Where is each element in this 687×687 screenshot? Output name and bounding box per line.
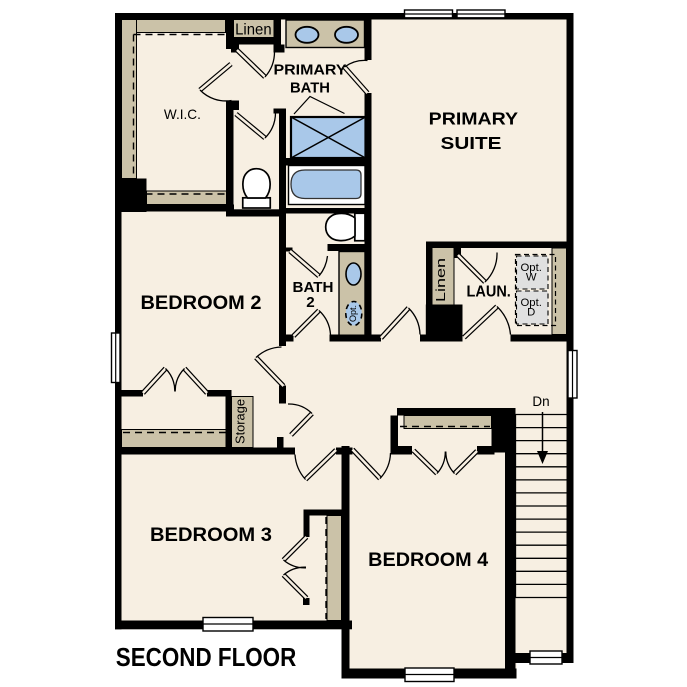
svg-text:BATH: BATH: [290, 80, 330, 97]
svg-text:Storage: Storage: [232, 399, 247, 444]
svg-text:SUITE: SUITE: [441, 133, 502, 153]
svg-text:W.I.C.: W.I.C.: [164, 106, 201, 122]
svg-text:Linen: Linen: [433, 258, 448, 302]
svg-text:D: D: [527, 306, 535, 318]
svg-text:Dn: Dn: [532, 394, 549, 409]
svg-text:SECOND FLOOR: SECOND FLOOR: [116, 642, 297, 672]
svg-text:BEDROOM 3: BEDROOM 3: [150, 524, 272, 546]
svg-text:BEDROOM 4: BEDROOM 4: [368, 549, 488, 571]
svg-text:LAUN.: LAUN.: [467, 283, 511, 300]
svg-text:W: W: [526, 271, 537, 283]
svg-text:2: 2: [306, 294, 314, 311]
svg-text:PRIMARY: PRIMARY: [274, 62, 347, 79]
svg-text:Opt.: Opt.: [348, 305, 358, 322]
svg-text:BEDROOM 2: BEDROOM 2: [141, 292, 262, 314]
svg-text:Linen: Linen: [235, 22, 272, 39]
svg-text:PRIMARY: PRIMARY: [429, 109, 519, 129]
